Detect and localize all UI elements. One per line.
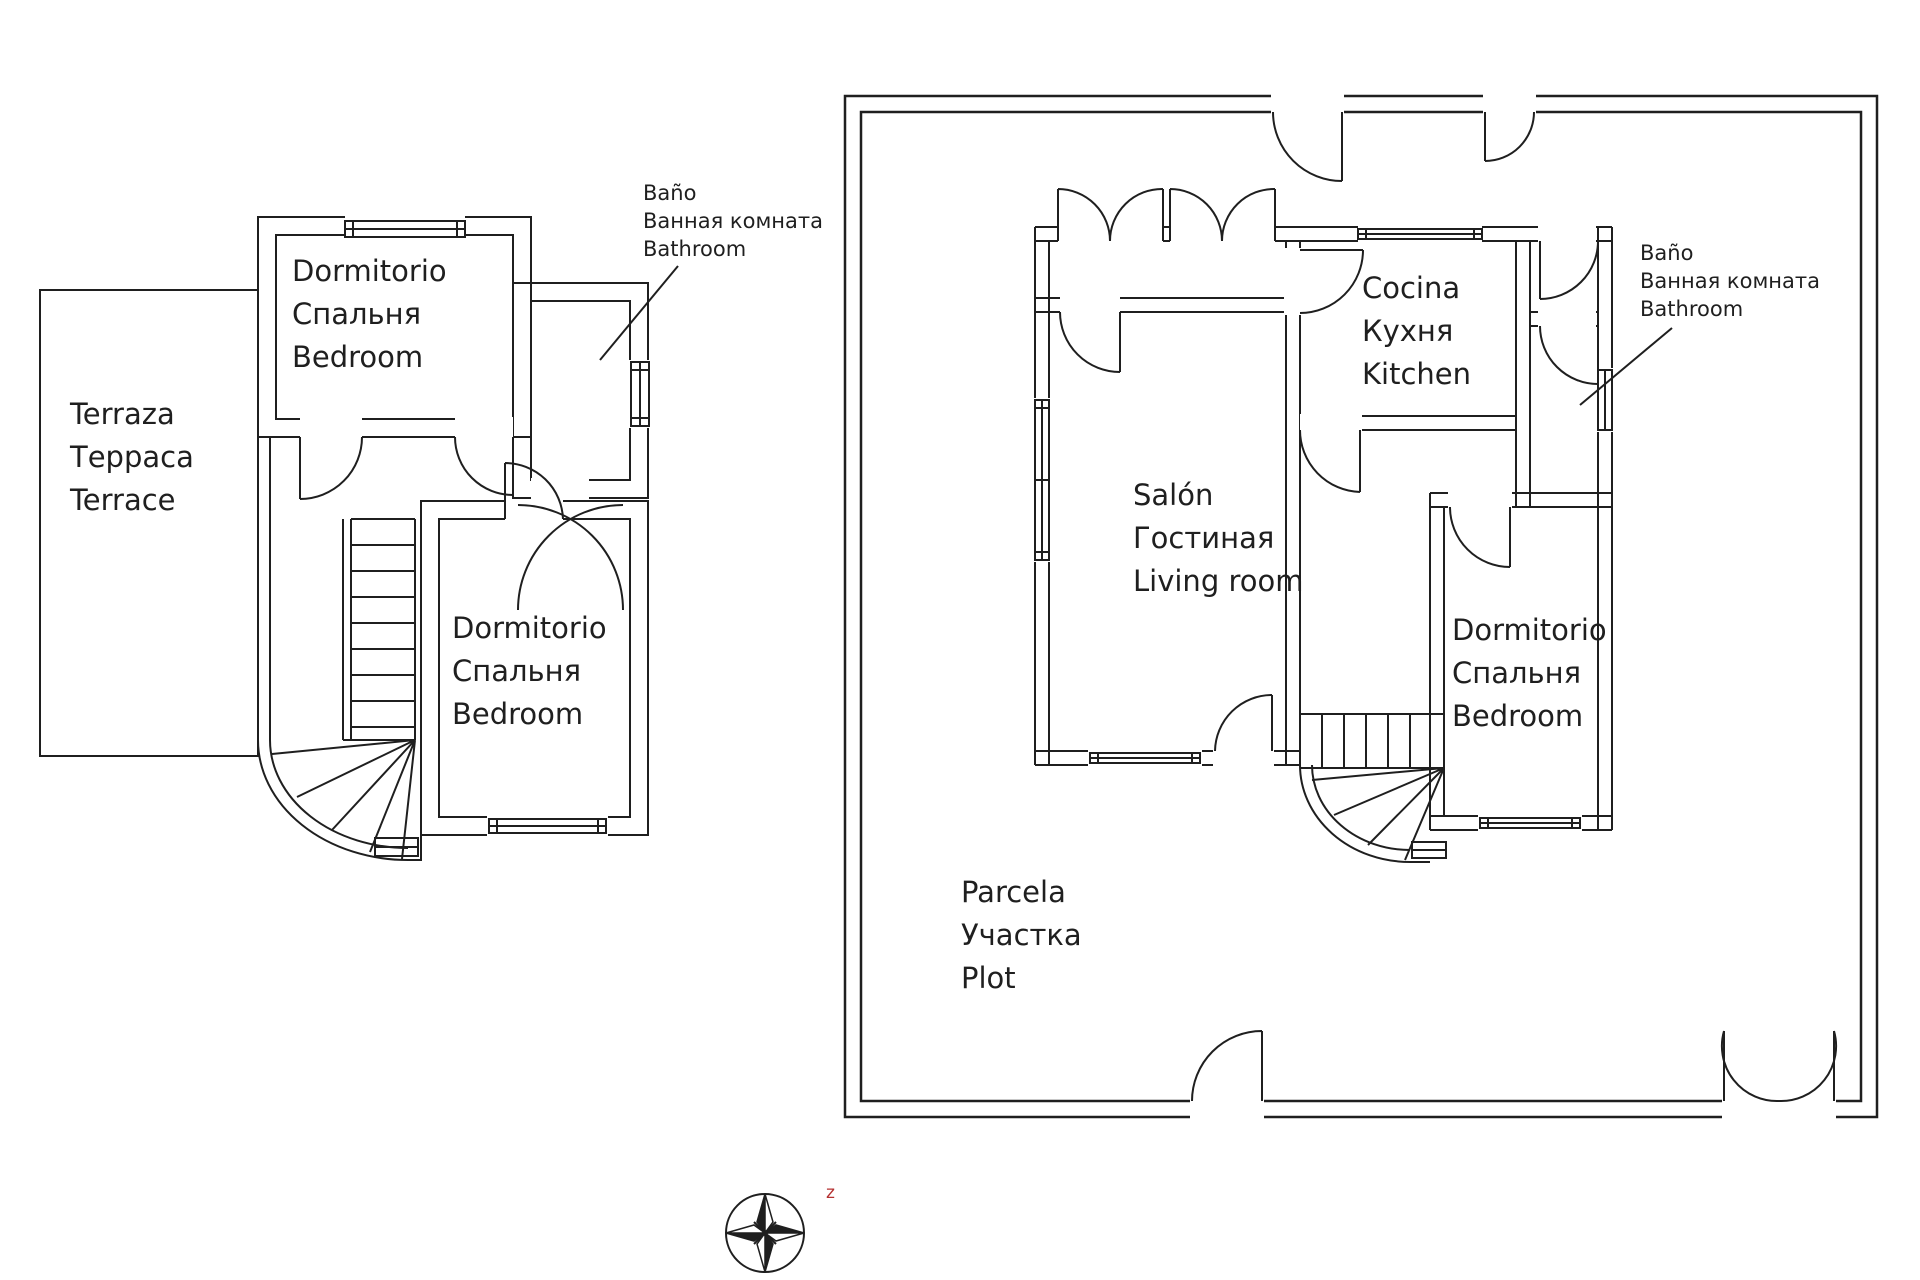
living-room-label-ru: Гостиная: [1133, 521, 1274, 555]
living-right-wall: [1286, 241, 1300, 765]
gate-arc-icon: [1485, 112, 1534, 161]
plot-label-es: Parcela: [961, 875, 1066, 909]
ground-floor-windows: [1035, 229, 1612, 858]
bedroom-bottom-label-es: Dormitorio: [452, 611, 607, 645]
bedroom-top-label-es: Dormitorio: [292, 254, 447, 288]
bathroom-note-leader-line: [600, 266, 678, 360]
bedroom-top-label-en: Bedroom: [292, 340, 423, 374]
bedroom-bottom-label-ru: Спальня: [452, 654, 581, 688]
bedroom-bottom-label-en: Bedroom: [452, 697, 583, 731]
bedroom-top-label-ru: Спальня: [292, 297, 421, 331]
living-room-label-en: Living room: [1133, 564, 1303, 598]
door-arc-icon: [1060, 312, 1120, 372]
house-walls: [1035, 227, 1612, 830]
bathroom-note-en: Bathroom: [643, 237, 746, 261]
ground-floor-staircase: [1300, 714, 1444, 862]
bathroom-note-ru: Ванная комната: [1640, 269, 1820, 293]
bedroom-label-ru: Спальня: [1452, 656, 1581, 690]
kitchen-label-ru: Кухня: [1362, 314, 1453, 348]
gate-arc-icon: [1273, 112, 1342, 181]
plot-label-ru: Участка: [961, 918, 1082, 952]
upper-floor-labels: Terraza Терраса Terrace Dormitorio Спаль…: [69, 181, 823, 731]
terrace-label-es: Terraza: [69, 397, 175, 431]
kitchen-label-en: Kitchen: [1362, 357, 1471, 391]
door-arc-icon: [1300, 250, 1363, 313]
door-arc-icon: [1300, 430, 1360, 492]
window-icon: [1412, 842, 1446, 858]
kitchen-label-es: Cocina: [1362, 271, 1460, 305]
bathroom-note-leader-line: [1580, 328, 1672, 405]
door-arc-icon: [1540, 326, 1598, 384]
stair-curved-wall: [258, 740, 421, 860]
ground-floor-labels: Cocina Кухня Kitchen Salón Гостиная Livi…: [961, 241, 1820, 995]
double-gate-arc-icon: [1722, 1031, 1836, 1101]
compass-rose-icon: z: [726, 1183, 835, 1272]
door-arc-icon: [300, 437, 362, 499]
bathroom-note-ru: Ванная комната: [643, 209, 823, 233]
plot-label-en: Plot: [961, 961, 1016, 995]
ground-floor-plan: Cocina Кухня Kitchen Salón Гостиная Livi…: [845, 94, 1877, 1119]
entry-door-arc-icon: [1540, 241, 1598, 299]
bathroom-note-en: Bathroom: [1640, 297, 1743, 321]
bathroom-note-es: Baño: [643, 181, 696, 205]
hall-left-wall: [258, 437, 270, 740]
upper-floor-doors: [300, 437, 623, 610]
upper-floor-plan: Terraza Терраса Terrace Dormitorio Спаль…: [40, 181, 823, 860]
door-arc-icon: [1215, 695, 1272, 751]
bathroom-note-es: Baño: [1640, 241, 1693, 265]
bathroom-inner-wall: [531, 301, 630, 480]
upper-floor-staircase: [272, 519, 415, 859]
compass-north-marker: z: [826, 1183, 835, 1203]
bathroom-outer-wall: [513, 283, 648, 498]
terrace-label-ru: Терраса: [69, 440, 194, 474]
house-right-wall: [1598, 227, 1612, 830]
terrace-label-en: Terrace: [69, 483, 176, 517]
kitchen-right-wall: [1516, 241, 1530, 507]
terrace-walls: [40, 290, 258, 756]
window-icon: [375, 838, 418, 856]
ground-floor-openings: [1033, 94, 1836, 1119]
gate-arc-icon: [1192, 1031, 1262, 1101]
door-arc-icon: [1450, 507, 1510, 567]
bedroom-label-en: Bedroom: [1452, 699, 1583, 733]
floor-plan-document: Terraza Терраса Terrace Dormitorio Спаль…: [0, 0, 1920, 1280]
floor-plan-drawing: Terraza Терраса Terrace Dormitorio Спаль…: [0, 0, 1920, 1280]
bedroom-label-es: Dormitorio: [1452, 613, 1607, 647]
living-room-label-es: Salón: [1133, 478, 1213, 512]
